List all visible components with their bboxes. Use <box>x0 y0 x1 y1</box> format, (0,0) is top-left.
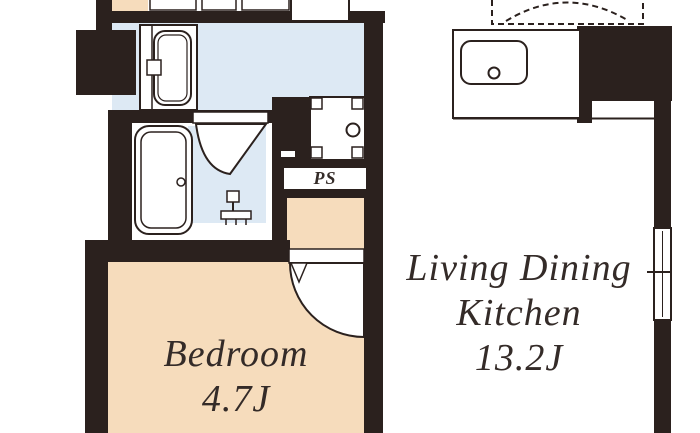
ldk-label: Living Dining Kitchen 13.2J <box>385 246 653 381</box>
bedroom-door-threshold <box>289 249 364 263</box>
bathtub-drain <box>177 178 185 186</box>
refrigerator-space <box>492 0 643 24</box>
top-cabinet-3 <box>242 0 289 10</box>
washbasin-faucet <box>147 60 161 75</box>
shower-faucet <box>221 191 251 225</box>
ldk-label-line2: Kitchen <box>385 291 653 336</box>
top-storage-box <box>291 0 349 21</box>
bedroom-name: Bedroom <box>107 332 365 377</box>
ldk-area: 13.2J <box>385 336 653 381</box>
bedroom-area: 4.7J <box>107 377 365 422</box>
ldk-label-line1: Living Dining <box>385 246 653 291</box>
washbasin-vanity <box>140 25 197 110</box>
bedroom-label: Bedroom 4.7J <box>107 332 365 422</box>
top-cabinet-1 <box>150 0 196 10</box>
floor-plan: PS <box>0 0 700 433</box>
top-cabinet-2 <box>202 0 236 10</box>
kitchen-counter <box>453 30 657 119</box>
bathtub <box>135 126 192 234</box>
bathroom-threshold <box>193 112 268 123</box>
washer-drain <box>347 124 360 137</box>
kitchen-sink-drain <box>489 68 500 79</box>
washing-machine-pan <box>310 97 365 160</box>
bathroom-folding-door <box>196 124 266 174</box>
bedroom-swing-door <box>289 249 364 337</box>
